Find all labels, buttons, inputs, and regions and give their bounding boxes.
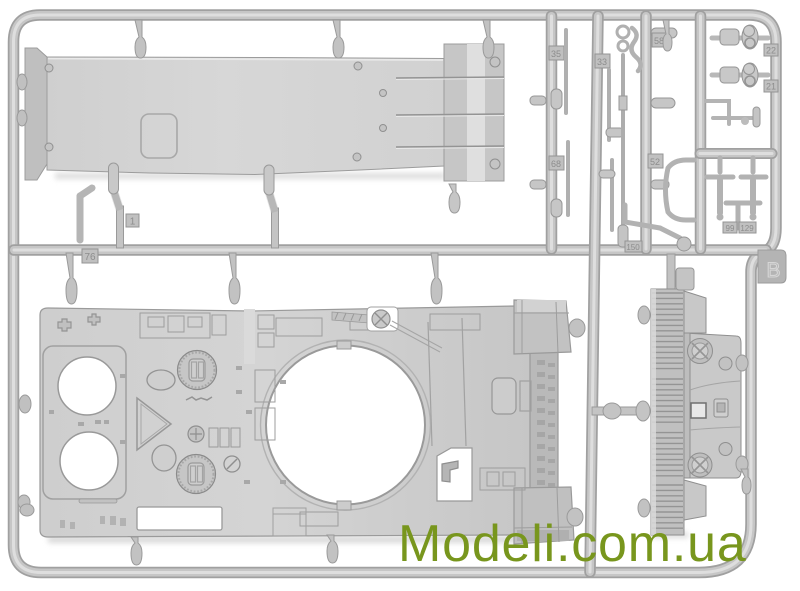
svg-text:1: 1: [130, 217, 136, 228]
svg-text:68: 68: [551, 159, 561, 169]
svg-text:129: 129: [740, 224, 754, 233]
svg-text:33: 33: [597, 57, 607, 67]
svg-text:35: 35: [551, 49, 561, 59]
svg-text:58: 58: [654, 36, 664, 46]
svg-text:Modeli.com.ua: Modeli.com.ua: [398, 515, 747, 573]
svg-text:99: 99: [726, 224, 735, 233]
svg-text:B: B: [766, 259, 780, 282]
svg-text:52: 52: [650, 157, 660, 167]
svg-text:21: 21: [766, 82, 776, 92]
svg-text:22: 22: [766, 46, 776, 56]
svg-text:76: 76: [84, 252, 96, 263]
svg-text:150: 150: [626, 243, 640, 252]
